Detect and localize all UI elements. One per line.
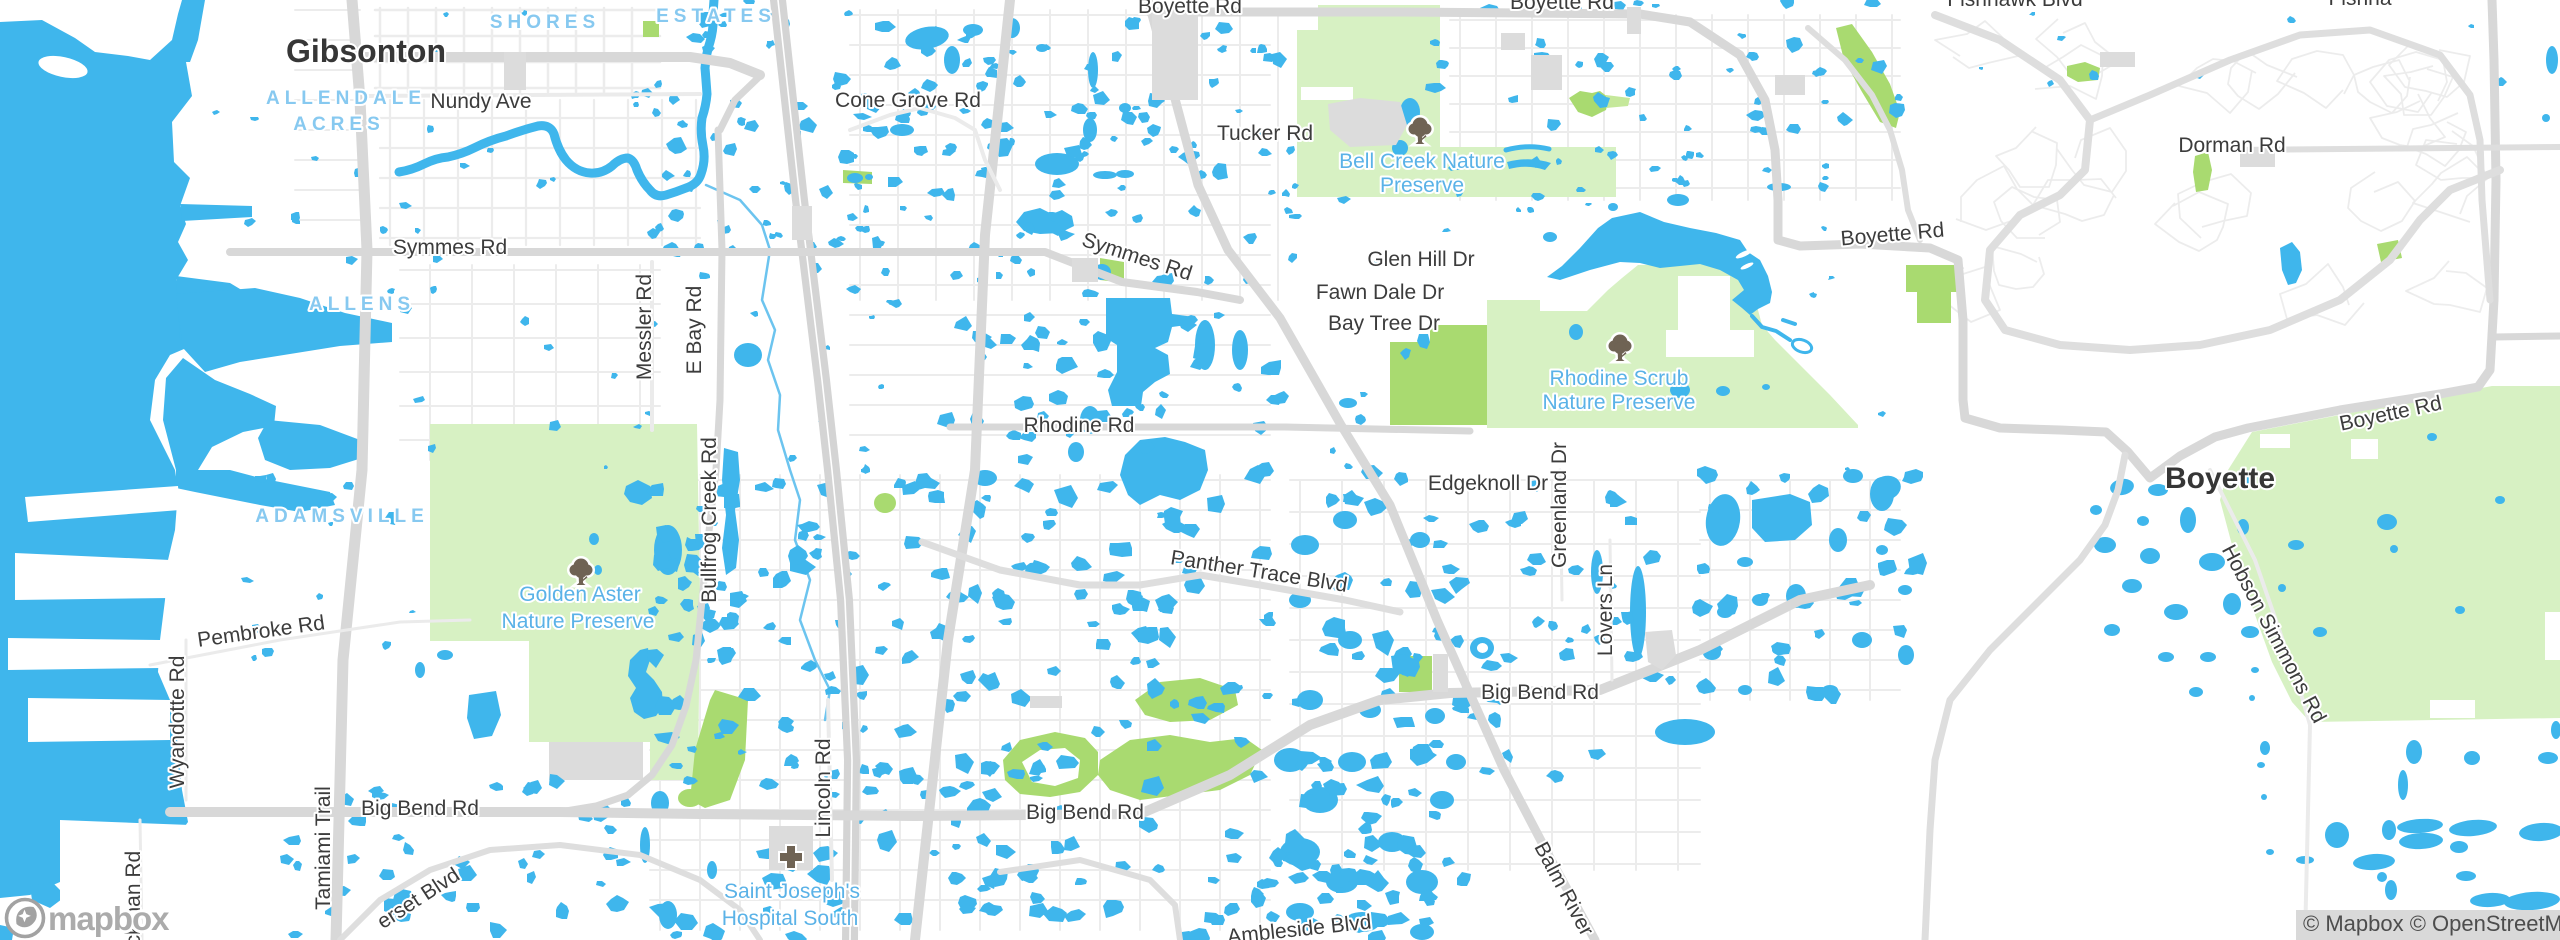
svg-text:Glen Hill Dr: Glen Hill Dr xyxy=(1367,248,1474,271)
svg-text:Bay Tree Dr: Bay Tree Dr xyxy=(1328,312,1440,335)
svg-text:Bell Creek Nature: Bell Creek Nature xyxy=(1339,150,1505,173)
svg-text:Boyette Rd: Boyette Rd xyxy=(1138,0,1242,18)
svg-text:Gibsonton: Gibsonton xyxy=(286,33,446,69)
svg-text:Saint Joseph's: Saint Joseph's xyxy=(724,880,860,903)
svg-text:SHORES: SHORES xyxy=(490,12,600,33)
svg-text:Big Bend Rd: Big Bend Rd xyxy=(361,797,479,820)
svg-text:ALLENS: ALLENS xyxy=(309,294,415,315)
svg-text:Fawn Dale Dr: Fawn Dale Dr xyxy=(1316,281,1444,304)
svg-text:Cone Grove Rd: Cone Grove Rd xyxy=(835,89,981,112)
svg-text:Greenland Dr: Greenland Dr xyxy=(1548,442,1571,568)
svg-text:Boyette: Boyette xyxy=(2165,462,2275,495)
svg-text:Nature Preserve: Nature Preserve xyxy=(1543,391,1696,414)
svg-text:mapbox: mapbox xyxy=(48,900,170,937)
svg-text:Boyette Rd: Boyette Rd xyxy=(1510,0,1614,14)
svg-text:Big Bend Rd: Big Bend Rd xyxy=(1481,681,1599,704)
svg-text:Rhodine Scrub: Rhodine Scrub xyxy=(1550,367,1689,390)
svg-text:Fishha: Fishha xyxy=(2328,0,2391,10)
svg-text:ACRES: ACRES xyxy=(293,114,385,135)
svg-text:Fishhawk Blvd: Fishhawk Blvd xyxy=(1947,0,2082,11)
svg-text:ADAMSVILLE: ADAMSVILLE xyxy=(255,506,429,527)
svg-text:Rhodine Rd: Rhodine Rd xyxy=(1024,414,1135,437)
svg-text:ALLENDALE: ALLENDALE xyxy=(266,88,426,109)
svg-text:Lovers Ln: Lovers Ln xyxy=(1594,564,1617,656)
svg-text:Lincoln Rd: Lincoln Rd xyxy=(812,738,835,837)
svg-text:Symmes Rd: Symmes Rd xyxy=(393,236,507,259)
svg-text:Wyandotte Rd: Wyandotte Rd xyxy=(166,656,189,789)
svg-text:Messler Rd: Messler Rd xyxy=(633,274,656,380)
svg-text:ESTATES: ESTATES xyxy=(656,6,776,27)
svg-text:Nundy Ave: Nundy Ave xyxy=(430,90,531,113)
svg-text:Preserve: Preserve xyxy=(1380,174,1464,197)
svg-text:Hospital South: Hospital South xyxy=(722,907,859,930)
svg-text:Edgeknoll Dr: Edgeknoll Dr xyxy=(1428,472,1548,495)
svg-text:© Mapbox © OpenStreetMap: © Mapbox © OpenStreetMap xyxy=(2303,911,2560,936)
svg-text:Dorman Rd: Dorman Rd xyxy=(2178,134,2285,157)
svg-text:Tucker Rd: Tucker Rd xyxy=(1217,122,1313,145)
svg-text:Bullfrog Creek Rd: Bullfrog Creek Rd xyxy=(698,437,721,603)
svg-text:Big Bend Rd: Big Bend Rd xyxy=(1026,801,1144,824)
svg-text:E Bay Rd: E Bay Rd xyxy=(683,286,706,375)
svg-text:Tamiami Trail: Tamiami Trail xyxy=(312,786,335,910)
svg-text:Nature Preserve: Nature Preserve xyxy=(502,610,655,633)
